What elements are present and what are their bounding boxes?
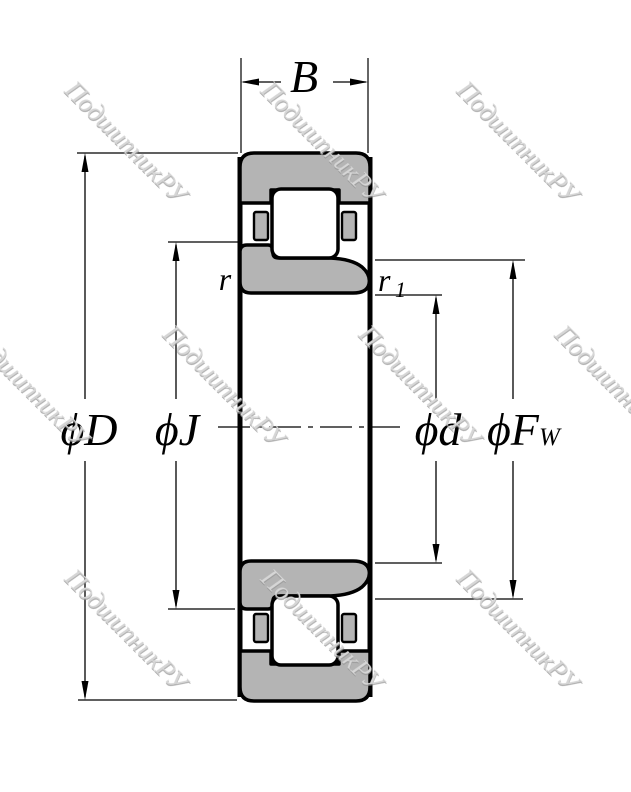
arrow-width-left: [241, 79, 259, 86]
arrow-rib-dia-down: [173, 590, 180, 609]
cage-bottom-left: [254, 614, 268, 642]
cage-top-right: [342, 212, 356, 240]
arrow-rib-dia-up: [173, 242, 180, 261]
label-chamfer-outer: r: [219, 261, 232, 297]
watermark-text: ПодшипникРУ: [0, 319, 97, 456]
arrow-width-right: [350, 79, 368, 86]
drawing-canvas: B ϕD ϕJ ϕd ϕF W r r 1 ПодшипникРУ Подшип…: [0, 0, 631, 792]
label-raceway-diameter-subscript: W: [539, 424, 562, 451]
watermark-text: ПодшипникРУ: [451, 75, 588, 212]
arrow-bore-dia-down: [433, 544, 440, 563]
label-raceway-diameter: ϕF: [487, 404, 540, 455]
watermark-text: ПодшипникРУ: [59, 563, 196, 700]
bearing-drawing: B ϕD ϕJ ϕd ϕF W r r 1 ПодшипникРУ Подшип…: [0, 0, 631, 792]
watermark-text: ПодшипникРУ: [59, 75, 196, 212]
roller-top: [272, 189, 338, 258]
label-chamfer-inner-subscript: 1: [395, 277, 406, 302]
label-rib-diameter: ϕJ: [155, 404, 202, 455]
label-chamfer-inner: r: [378, 262, 391, 298]
arrow-raceway-dia-down: [510, 580, 517, 599]
arrow-bore-dia-up: [433, 295, 440, 314]
arrow-outer-dia-up: [82, 153, 89, 172]
arrow-raceway-dia-up: [510, 260, 517, 279]
arrow-outer-dia-down: [82, 681, 89, 700]
cage-top-left: [254, 212, 268, 240]
watermark-text: ПодшипникРУ: [451, 563, 588, 700]
